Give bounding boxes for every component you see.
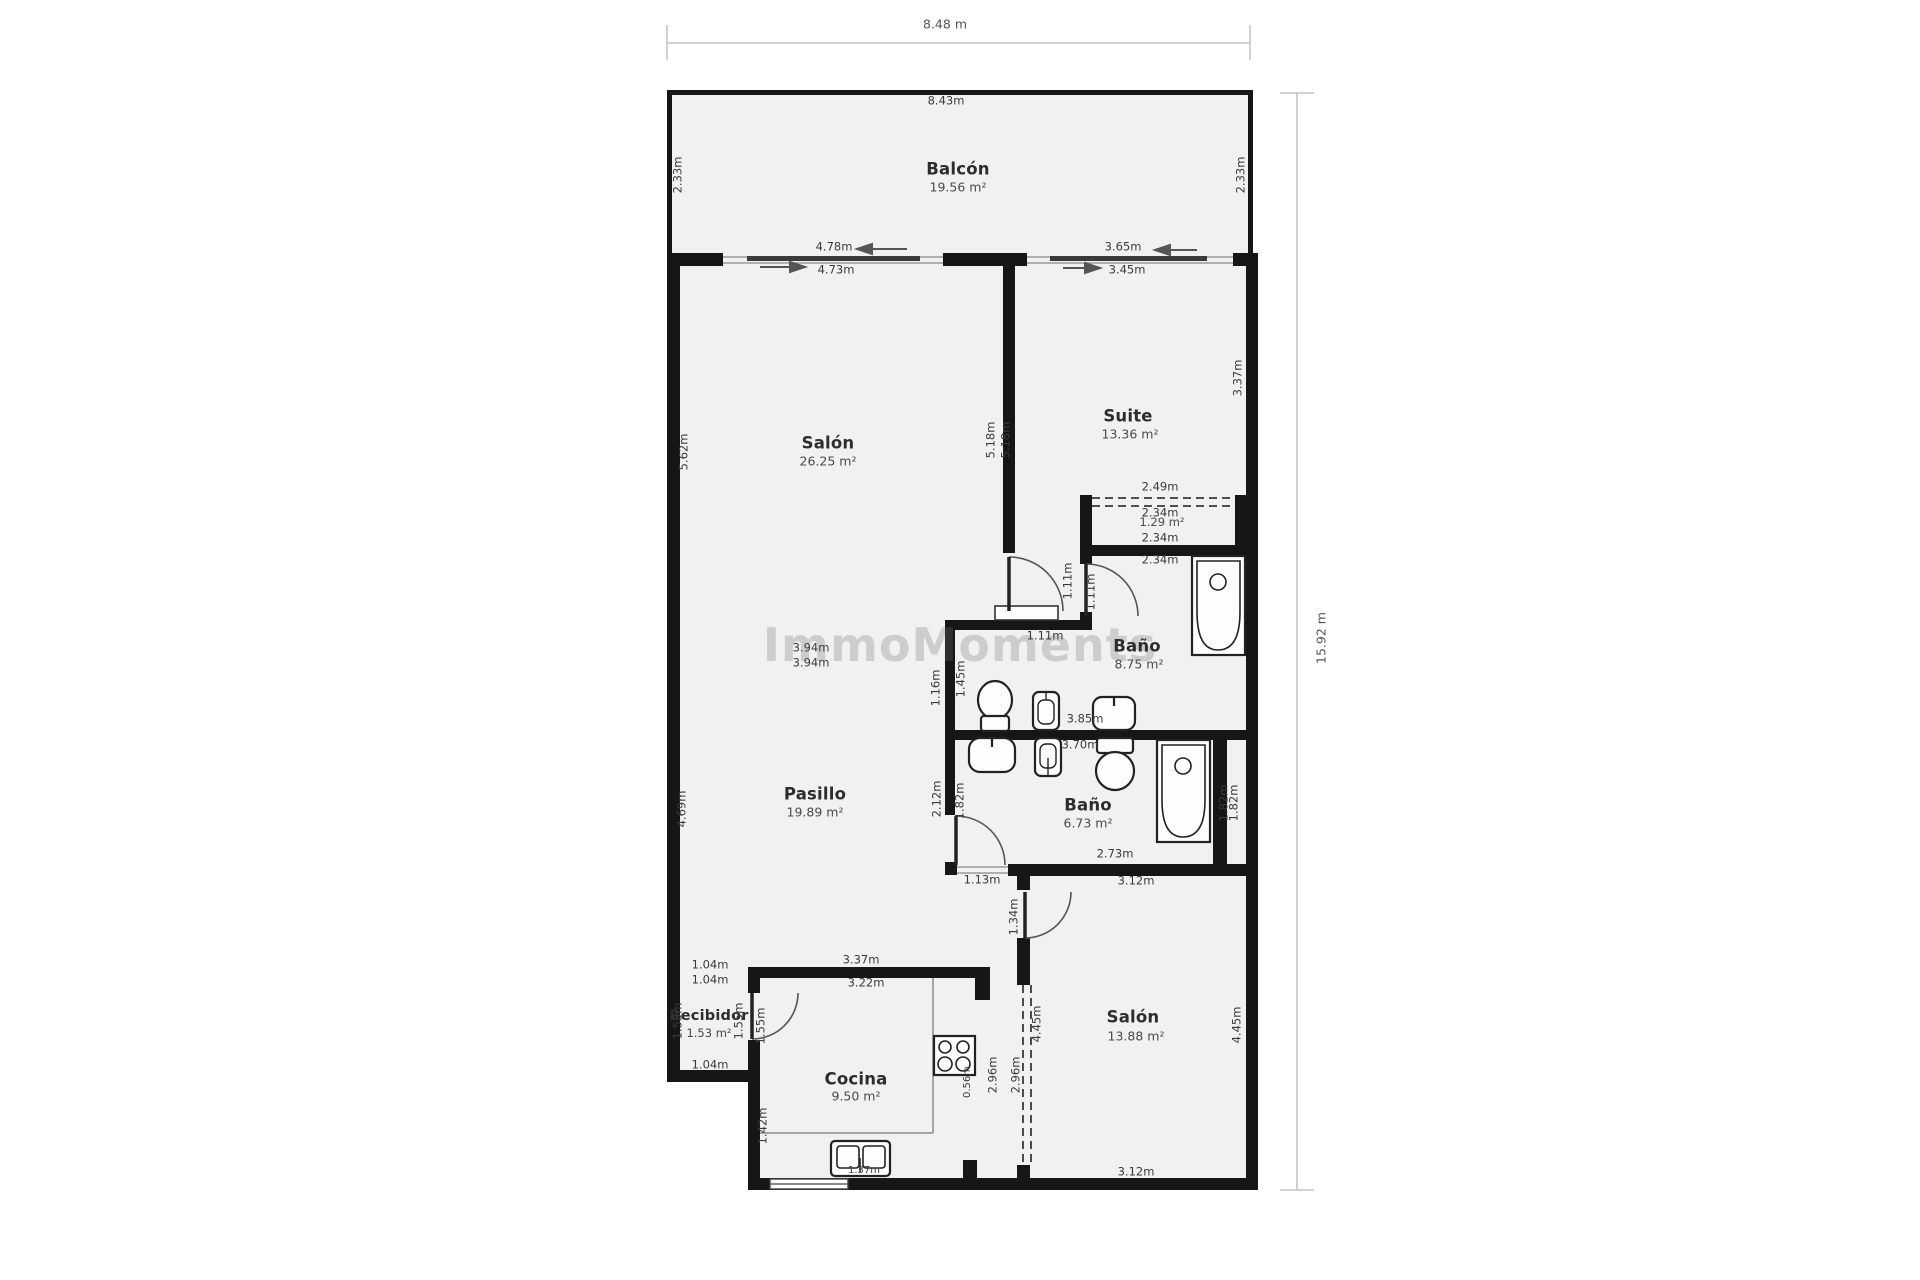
measure-label: 3.65m (1105, 241, 1142, 253)
room-area-armario: 1.29 m² (1139, 515, 1184, 529)
measure-label: 1.11m (1085, 574, 1097, 611)
measure-label: 3.85m (1067, 713, 1104, 725)
room-label-balcon: Balcón (926, 160, 989, 179)
measure-label: 4.78m (816, 241, 853, 253)
bathtub-icon (1157, 740, 1210, 842)
room-label-salon2: Salón (1107, 1008, 1160, 1027)
room-area-bano1: 8.75 m² (1115, 657, 1164, 672)
room-label-bano2: Baño (1064, 796, 1112, 815)
measure-label: 0.56m (963, 1066, 973, 1098)
bathtub-icon (1192, 556, 1245, 655)
measure-label: 3.22m (848, 977, 885, 989)
measure-label: 3.12m (1118, 1166, 1155, 1178)
measure-label: 3.94m (793, 642, 830, 654)
room-label-pasillo: Pasillo (784, 785, 846, 804)
room-area-cocina: 9.50 m² (832, 1089, 881, 1104)
measure-label: 1.82m (954, 783, 966, 820)
measure-label: 2.12m (931, 781, 943, 818)
measure-label: 3.94m (793, 657, 830, 669)
kitchen-counter (760, 978, 933, 1133)
room-label-suite: Suite (1103, 407, 1152, 426)
measure-label: 1.42m (757, 1108, 769, 1145)
measure-label: 1.55m (733, 1003, 745, 1040)
measure-label: 1.11m (1062, 563, 1074, 600)
room-area-suite: 13.36 m² (1102, 427, 1159, 442)
room-area-salon: 26.25 m² (800, 454, 857, 469)
measure-label: 4.69m (676, 791, 688, 828)
measure-label: 3.45m (1109, 264, 1146, 276)
measure-label: 8.43m (928, 95, 965, 107)
measure-label: 1.37m (848, 1166, 880, 1176)
measure-label: 1.16m (930, 670, 942, 707)
measure-label: 1.45m (955, 661, 967, 698)
dim-width-label: 8.48 m (923, 17, 967, 32)
room-label-bano1: Baño (1113, 637, 1161, 656)
room-area-bano2: 6.73 m² (1064, 816, 1113, 831)
measure-label: 1.82m (1228, 785, 1240, 822)
measure-label: 2.73m (1097, 848, 1134, 860)
measure-label: 2.33m (672, 157, 684, 194)
measure-label: 4.45m (1231, 1007, 1243, 1044)
measure-label: 2.34m (1142, 554, 1179, 566)
toilet-icon (1096, 738, 1134, 790)
measure-label: 2.49m (1142, 481, 1179, 493)
dim-height-label: 15.92 m (1314, 612, 1329, 664)
room-area-recibidor: 1.53 m² (686, 1026, 731, 1040)
measure-label: 1.04m (692, 959, 729, 971)
room-area-salon2: 13.88 m² (1108, 1029, 1165, 1044)
sink-icon (1033, 692, 1059, 730)
sliding-door-leaf (747, 256, 920, 261)
sink-icon (1035, 738, 1061, 776)
measure-label: 3.37m (843, 954, 880, 966)
toilet-icon (978, 681, 1012, 731)
measure-label: 3.37m (1232, 360, 1244, 397)
floor-plan: ImmoMoments 8.48 m 15.92 m 8.43m 2.33m 2… (0, 0, 1920, 1280)
measure-label: 2.34m (1142, 532, 1179, 544)
measure-label: 5.18m (1000, 422, 1012, 459)
room-label-cocina: Cocina (825, 1070, 888, 1089)
measure-label: 2.96m (1010, 1057, 1022, 1094)
measure-label: 1.04m (692, 1059, 729, 1071)
measure-label: 5.18m (985, 422, 997, 459)
measure-label: 1.55m (672, 1003, 684, 1040)
measure-label: 1.04m (692, 974, 729, 986)
room-area-balcon: 19.56 m² (930, 180, 987, 195)
room-label-salon: Salón (802, 434, 855, 453)
measure-label: 4.45m (1031, 1006, 1043, 1043)
measure-label: 2.96m (987, 1057, 999, 1094)
measure-label: 1.11m (1027, 630, 1064, 642)
measure-label: 1.55m (755, 1008, 767, 1045)
measure-label: 1.34m (1008, 899, 1020, 936)
measure-label: 3.12m (1118, 875, 1155, 887)
measure-label: 4.73m (818, 264, 855, 276)
room-area-pasillo: 19.89 m² (787, 805, 844, 820)
measure-label: 3.70m (1062, 739, 1099, 751)
measure-label: 1.13m (964, 874, 1001, 886)
measure-label: 5.62m (678, 434, 690, 471)
sliding-door-leaf (1050, 256, 1207, 261)
kitchen-window (770, 1179, 848, 1189)
measure-label: 2.33m (1235, 157, 1247, 194)
sink-icon (969, 738, 1015, 772)
